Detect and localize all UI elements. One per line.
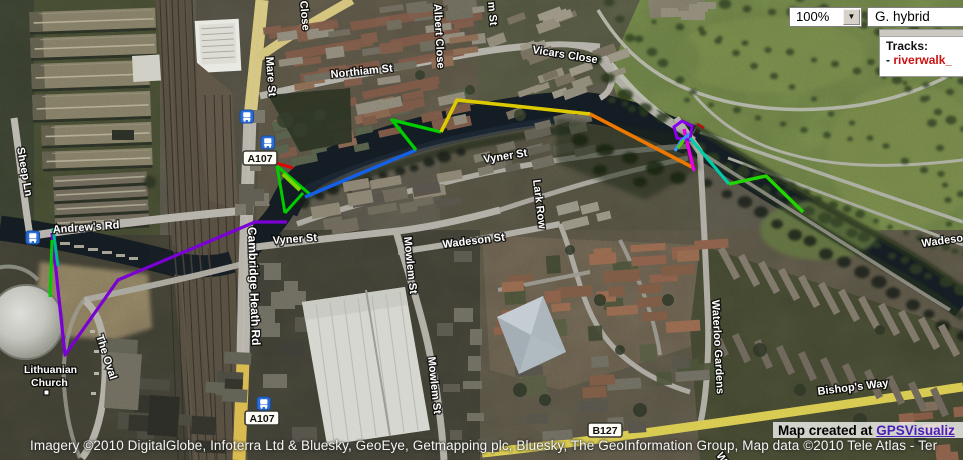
svg-text:m St: m St [485, 1, 499, 26]
svg-text:B127: B127 [592, 425, 617, 437]
svg-text:A107: A107 [247, 153, 272, 165]
svg-text:A107: A107 [249, 413, 274, 425]
svg-text:Church: Church [31, 377, 68, 389]
svg-text:Lithuanian: Lithuanian [24, 364, 77, 376]
